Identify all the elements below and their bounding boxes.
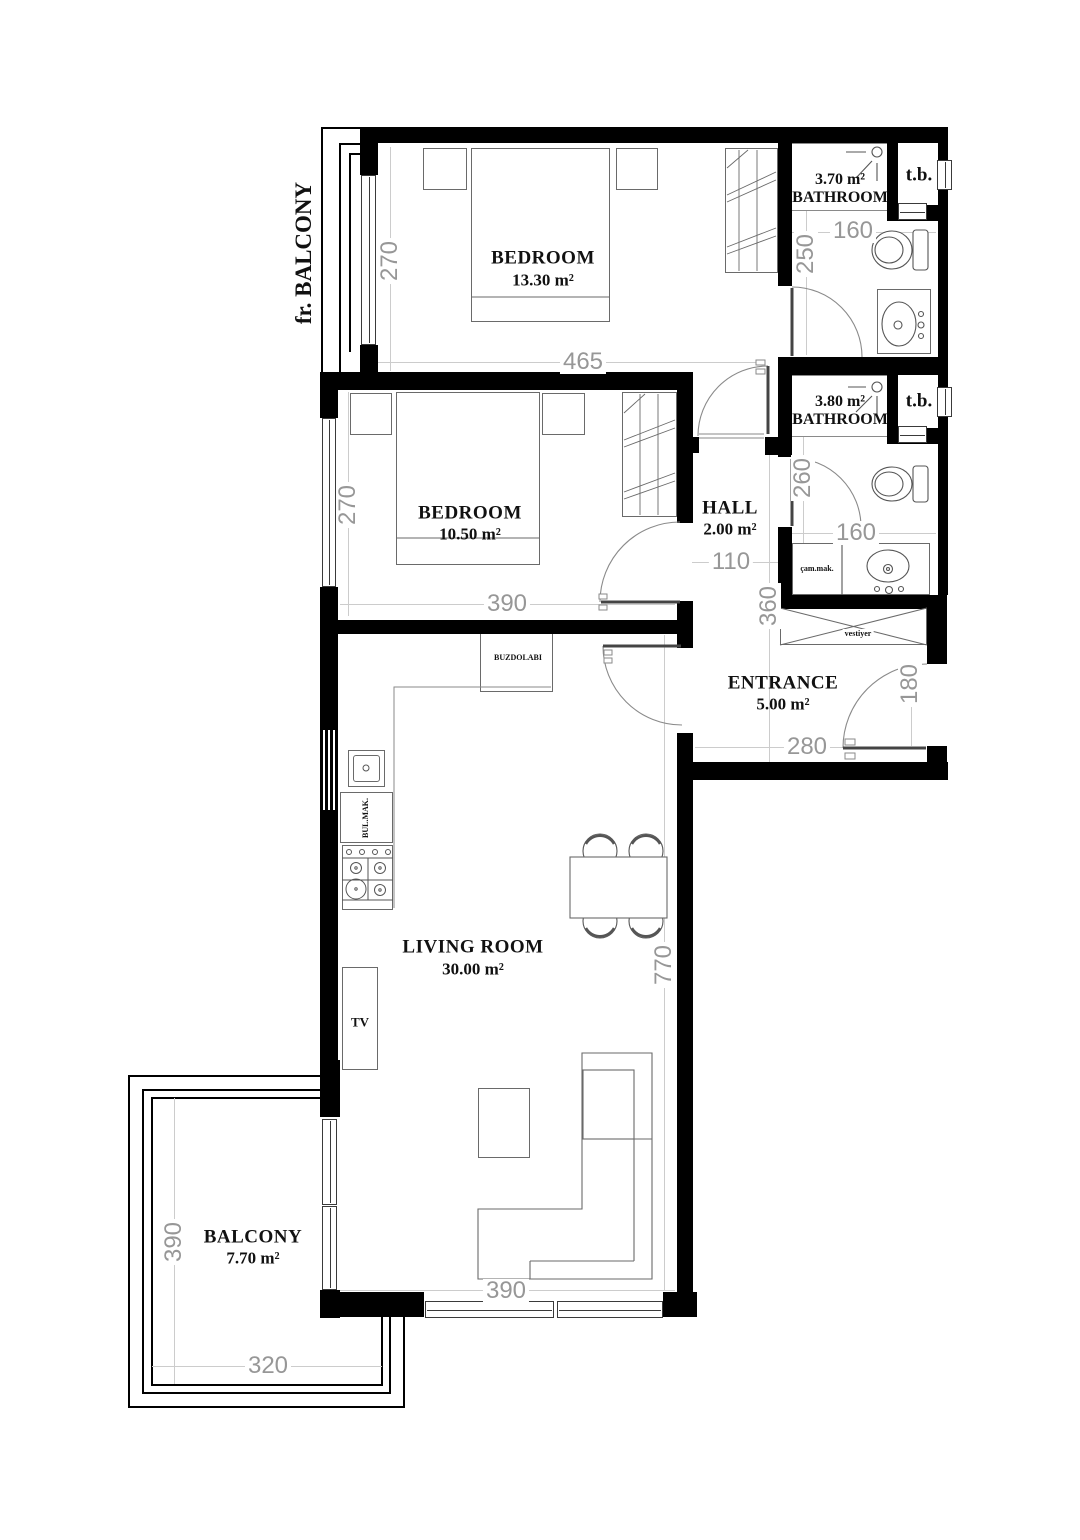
floor-plan: fr. BALCONY BEDROOM 13.30 m² BEDROOM 10.… bbox=[0, 0, 1080, 1540]
wardrobe1-internals bbox=[727, 150, 776, 271]
bedroom2-area: 10.50 m² bbox=[439, 526, 501, 543]
coat-closet-cross bbox=[780, 608, 927, 645]
fixtures-overlay bbox=[0, 0, 1080, 1540]
wardrobe2-internals bbox=[624, 394, 675, 515]
kitchen-sink-drain bbox=[363, 765, 369, 771]
door-handle bbox=[756, 360, 765, 365]
door-handle bbox=[756, 369, 765, 374]
dim-living-width: 390 bbox=[483, 1279, 529, 1303]
bedroom1-door-arc bbox=[698, 366, 768, 436]
dim-bathroom2-width: 160 bbox=[833, 521, 879, 545]
sink-bathroom1 bbox=[882, 302, 924, 346]
dim-balcony-width: 320 bbox=[245, 1354, 291, 1378]
balcony-area: 7.70 m² bbox=[226, 1250, 279, 1267]
toilet-bathroom2 bbox=[872, 466, 928, 502]
bedroom1-name: BEDROOM bbox=[491, 249, 595, 268]
bathroom1-name: BATHROOM bbox=[792, 190, 888, 206]
dim-entrance-door: 180 bbox=[898, 661, 922, 707]
french-balcony-label: fr. BALCONY bbox=[291, 182, 317, 324]
dim-hall-height: 360 bbox=[757, 583, 781, 629]
sofa bbox=[478, 1053, 652, 1279]
dim-living-height: 770 bbox=[652, 942, 676, 988]
bedroom2-door-arc bbox=[600, 522, 680, 602]
living-name: LIVING ROOM bbox=[402, 938, 543, 957]
bedroom1-door-threshold bbox=[699, 434, 764, 438]
shaft1-label: t.b. bbox=[906, 166, 932, 185]
dim-entrance-width: 280 bbox=[784, 735, 830, 759]
dim-bedroom1-width: 465 bbox=[560, 350, 606, 374]
bathroom2-area: 3.80 m² bbox=[815, 394, 865, 410]
kitchen-counter-line bbox=[394, 687, 551, 908]
door-handle bbox=[599, 594, 607, 599]
door-handle bbox=[845, 739, 855, 745]
fridge-label: BUZDOLABI bbox=[494, 654, 542, 662]
dishwasher-label: BUL.MAK. bbox=[362, 798, 370, 838]
balcony-name: BALCONY bbox=[204, 1228, 303, 1247]
hall-name: HALL bbox=[702, 499, 758, 518]
bedroom2-name: BEDROOM bbox=[418, 504, 522, 523]
dim-bathroom1-height: 250 bbox=[794, 231, 818, 277]
dim-hall-width: 110 bbox=[709, 550, 753, 574]
sink-bathroom2 bbox=[842, 543, 909, 595]
dim-bathroom1-width: 160 bbox=[830, 219, 876, 243]
coat-closet-label: vestiyer bbox=[843, 629, 874, 639]
bathroom1-door-arc bbox=[792, 287, 862, 357]
living-area: 30.00 m² bbox=[442, 961, 504, 978]
dim-bedroom1-height: 270 bbox=[378, 238, 402, 284]
dim-bedroom2-height: 270 bbox=[336, 482, 360, 528]
bathroom1-area: 3.70 m² bbox=[815, 172, 865, 188]
dim-bathroom2-height: 260 bbox=[791, 455, 815, 501]
dim-balcony-height: 390 bbox=[162, 1219, 186, 1265]
bedroom1-area: 13.30 m² bbox=[512, 272, 574, 289]
entrance-name: ENTRANCE bbox=[728, 674, 839, 693]
living-door-arc bbox=[603, 646, 682, 725]
tv-label: TV bbox=[351, 1016, 369, 1029]
dim-bedroom2-width: 390 bbox=[484, 592, 530, 616]
shaft2-label: t.b. bbox=[906, 392, 932, 411]
toilet-bathroom1 bbox=[872, 230, 928, 270]
dining-table bbox=[570, 857, 667, 918]
washing-machine-label: çam.mak. bbox=[800, 565, 833, 573]
bathroom2-name: BATHROOM bbox=[792, 412, 888, 428]
hall-area: 2.00 m² bbox=[703, 521, 756, 538]
door-handle bbox=[599, 605, 607, 610]
entrance-area: 5.00 m² bbox=[756, 696, 809, 713]
door-handle bbox=[845, 753, 855, 759]
door-handle bbox=[604, 650, 612, 655]
stove-details bbox=[342, 850, 393, 901]
door-handle bbox=[604, 658, 612, 663]
